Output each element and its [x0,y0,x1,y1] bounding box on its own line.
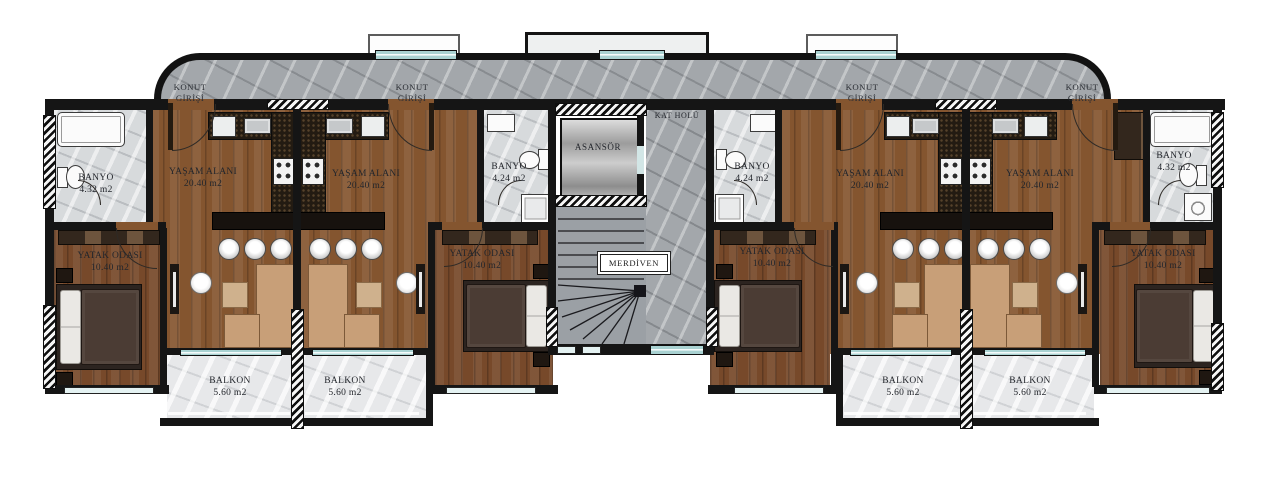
window [375,50,457,60]
tv-unit [170,264,179,314]
side-table [190,272,212,294]
window [64,387,154,394]
apt1-bedroom-label: YATAK ODASI 10.40 m2 [60,251,160,274]
stool [977,238,999,260]
bed-pillow [526,285,547,347]
bed-pillow [60,290,81,364]
stairs-label: MERDİVEN [600,254,668,272]
bathtub [57,112,125,147]
apt1-balcony-label: BALKON 5.60 m2 [182,376,278,399]
apt3-balcony-label: BALKON 5.60 m2 [855,376,951,399]
side-table [1056,272,1078,294]
side-table [856,272,878,294]
bathtub [1150,112,1214,147]
sofa [224,314,260,348]
entrance-label-1: KONUT GİRİŞİ [152,82,228,103]
wall [836,348,843,426]
apt1-bathroom-label: BANYO 4.32 m2 [54,173,138,196]
wall [962,110,970,312]
balcony-railing [168,412,290,415]
hatch-wall [1212,324,1223,390]
coffee-table [1012,282,1038,308]
sofa [344,314,380,348]
coffee-table [222,282,248,308]
apt3-living-label: YAŞAM ALANI 20.40 m2 [822,169,918,192]
hatch-wall [936,100,996,109]
apt1-living-label: YAŞAM ALANI 20.40 m2 [155,167,251,190]
hatch-wall [961,310,972,428]
apt2-bathroom-label: BANYO 4.24 m2 [470,162,548,185]
stove [969,158,991,185]
bar-counter [967,212,1053,230]
shower [521,194,550,223]
wall [160,418,301,426]
stove [940,158,962,185]
stool [244,238,266,260]
apt2-living-label: YAŞAM ALANI 20.40 m2 [318,169,414,192]
hatch-wall [268,100,328,109]
stove [273,158,295,185]
bar-counter [299,212,385,230]
window [650,345,704,355]
fridge [212,116,236,137]
hatch-wall [44,306,55,388]
stool [335,238,357,260]
apt2-bedroom-label: YATAK ODASI 10.40 m2 [432,249,532,272]
window [1106,387,1210,394]
stool [270,238,292,260]
hatch-wall [556,104,646,115]
kitchen-sink [912,118,939,134]
stool [309,238,331,260]
sofa [308,264,348,348]
stool [892,238,914,260]
balcony-door-window [180,349,282,356]
balcony-door-window [312,349,414,356]
bed-pillow [719,285,740,347]
fridge [361,116,385,137]
apt3-bedroom-label: YATAK ODASI 10.40 m2 [722,247,822,270]
entrance-label-2: KONUT GİRİŞİ [374,82,450,103]
corridor-floor [154,53,1111,105]
window [557,346,576,354]
bed-duvet [1136,289,1193,363]
balcony-railing [844,412,958,415]
apt4-bedroom-label: YATAK ODASI 10.40 m2 [1113,249,1213,272]
bathroom-sink [750,114,778,132]
wall [966,418,1099,426]
entrance-label-4: KONUT GİRİŞİ [1044,82,1120,103]
window [815,50,897,60]
fridge [1024,116,1048,137]
hatch-wall [556,196,646,206]
tv-unit [1078,264,1087,314]
window [734,387,824,394]
bar-counter [880,212,964,230]
stool [1003,238,1025,260]
kitchen-sink [992,118,1019,134]
balcony-railing [974,412,1086,415]
sofa [924,264,964,348]
stool [361,238,383,260]
elevator-label: ASANSÖR [556,142,640,152]
hall-label: KAT HOLÜ [640,111,714,121]
bed-pillow [1193,290,1214,362]
tv-unit [840,264,849,314]
apt2-balcony-label: BALKON 5.60 m2 [297,376,393,399]
bed-duvet [466,284,526,348]
bed-duvet [81,289,140,365]
sofa [892,314,928,348]
kitchen-sink [244,118,271,134]
coffee-table [356,282,382,308]
apt4-bathroom-label: BANYO 4.32 m2 [1135,151,1213,174]
hatch-wall [547,308,557,346]
apt3-bathroom-label: BANYO 4.24 m2 [713,162,791,185]
sofa [970,264,1010,348]
nightstand [716,352,733,367]
wall [1092,230,1099,387]
side-table [396,272,418,294]
bar-counter [212,212,298,230]
bathroom-sink [487,114,515,132]
hall-floor [646,110,708,353]
washing-machine [1184,193,1212,221]
wall [293,110,301,312]
wall [146,110,153,228]
tv-unit [416,264,425,314]
stool [1029,238,1051,260]
kitchen-sink [326,118,353,134]
apt4-balcony-label: BALKON 5.60 m2 [982,376,1078,399]
stool [918,238,940,260]
balcony-door-window [984,349,1086,356]
bed-duvet [740,284,800,348]
stairs-diagram [556,206,646,344]
entrance-label-3: KONUT GİRİŞİ [824,82,900,103]
sofa [1006,314,1042,348]
balcony-railing [305,412,419,415]
wall [297,418,433,426]
window [582,346,601,354]
hatch-wall [1212,113,1223,187]
apt4-living-label: YAŞAM ALANI 20.40 m2 [992,169,1088,192]
balcony-door-window [850,349,952,356]
hatch-wall [292,310,303,428]
window [599,50,665,60]
coffee-table [894,282,920,308]
floor-plan: KONUT GİRİŞİ KONUT GİRİŞİ KONUT GİRİŞİ K… [0,0,1287,480]
wall [426,348,433,426]
wall [160,228,167,387]
stool [218,238,240,260]
sofa [256,264,296,348]
hatch-wall [707,308,717,346]
window [446,387,536,394]
elevator-cab [560,118,640,200]
fridge [886,116,910,137]
wall [836,418,971,426]
